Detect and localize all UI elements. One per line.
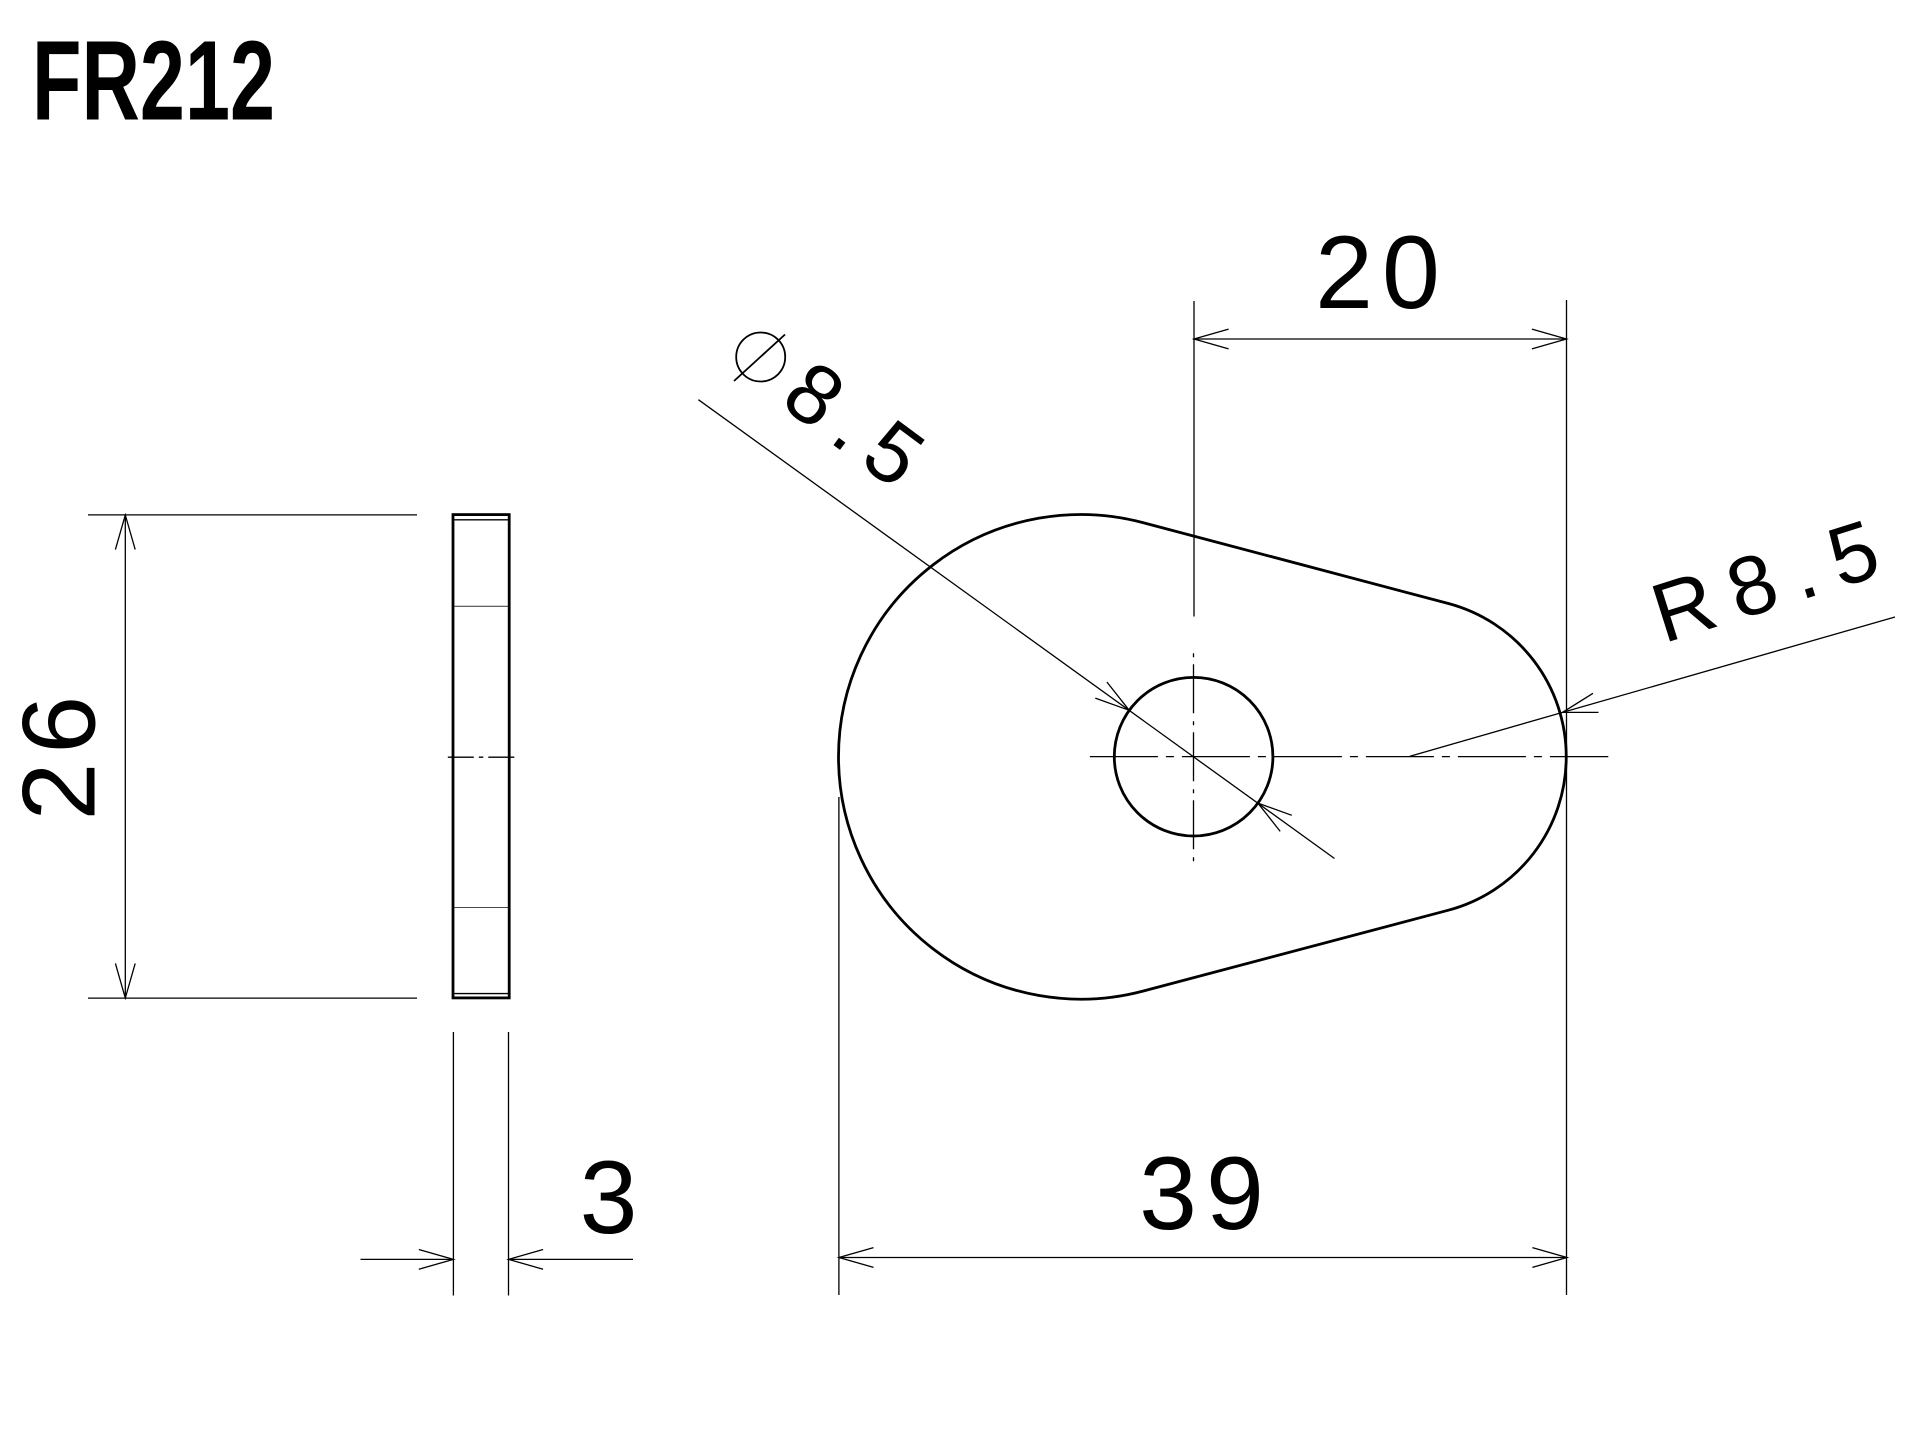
svg-text:20: 20 <box>1315 215 1449 331</box>
svg-text:FR212: FR212 <box>32 18 275 144</box>
svg-text:3: 3 <box>580 1140 647 1256</box>
svg-text:39: 39 <box>1139 1136 1273 1252</box>
svg-text:26: 26 <box>2 687 118 821</box>
